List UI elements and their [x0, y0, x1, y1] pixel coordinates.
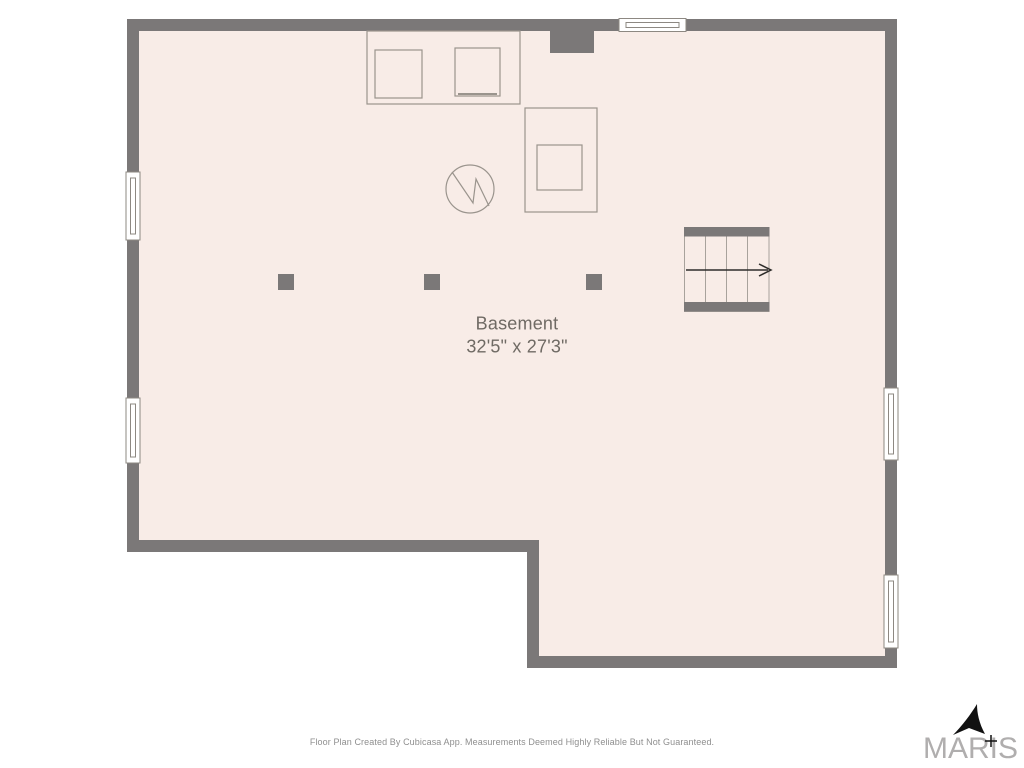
maris-logo: MARIS — [920, 698, 1024, 768]
footer-disclaimer: Floor Plan Created By Cubicasa App. Meas… — [0, 737, 1024, 747]
room-label: Basement — [476, 314, 559, 335]
support-column — [278, 274, 294, 290]
stair-bottom-landing — [684, 302, 770, 312]
left-wall-window-lower — [126, 398, 140, 463]
room-dimensions: 32'5" x 27'3" — [466, 337, 567, 358]
window-pane — [131, 178, 136, 234]
stair-top-landing — [684, 227, 770, 237]
right-wall-window-upper — [884, 388, 898, 460]
window-pane — [889, 581, 894, 642]
left-wall-window-upper — [126, 172, 140, 240]
right-wall-window-lower — [884, 575, 898, 648]
window-pane — [889, 394, 894, 454]
window-pane — [131, 404, 136, 457]
compass-arrowhead — [953, 704, 985, 735]
support-column — [424, 274, 440, 290]
window-pane — [626, 23, 679, 28]
floor-plan-drawing — [0, 0, 1024, 768]
compass-arrow-icon — [945, 698, 1010, 750]
support-column — [586, 274, 602, 290]
chimney — [550, 31, 594, 53]
floor-plan-page: Basement 32'5" x 27'3" Floor Plan Create… — [0, 0, 1024, 768]
top-wall-window — [619, 19, 686, 32]
